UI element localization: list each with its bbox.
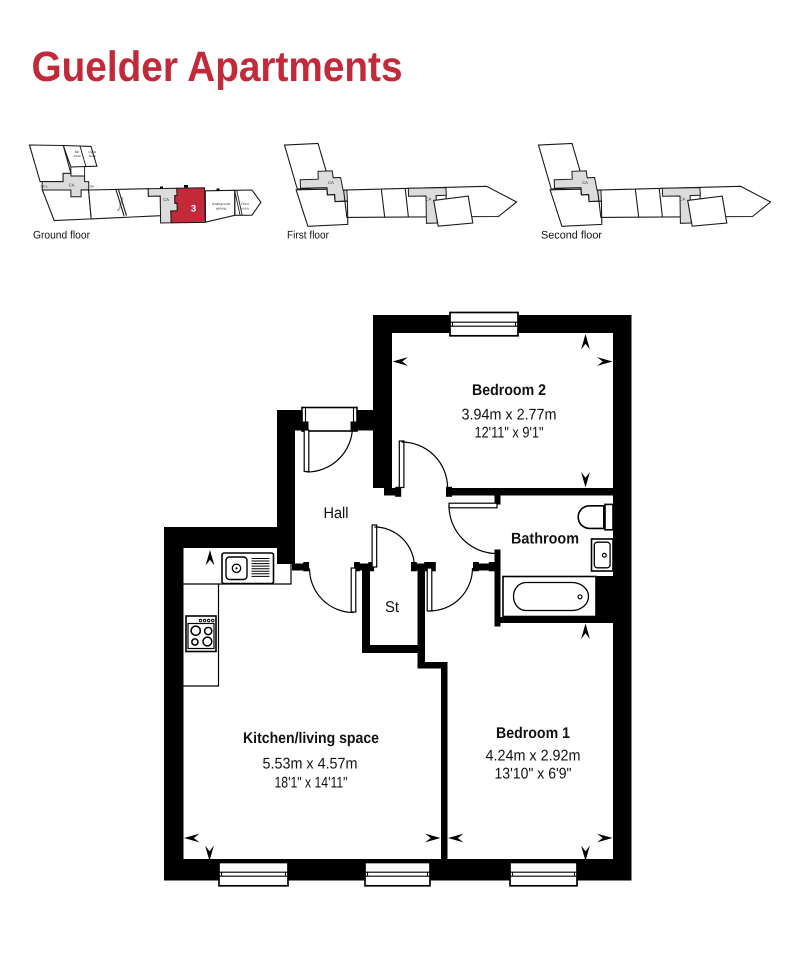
svg-text:Underground: Underground (212, 202, 231, 206)
svg-text:Second floor: Second floor (541, 230, 602, 242)
svg-text:St: St (385, 599, 400, 616)
svg-text:CA: CA (680, 197, 686, 202)
svg-text:Hall: Hall (324, 505, 349, 522)
svg-text:3: 3 (191, 204, 196, 215)
svg-text:Guelder Apartments: Guelder Apartments (32, 44, 403, 91)
svg-text:Plant: Plant (241, 202, 248, 206)
svg-text:CA: CA (163, 197, 169, 202)
svg-text:13'10" x 6'9": 13'10" x 6'9" (495, 766, 572, 783)
svg-text:3.94m x 2.77m: 3.94m x 2.77m (462, 407, 557, 424)
svg-text:WCs: WCs (41, 184, 48, 188)
svg-text:18'1" x 14'11": 18'1" x 14'11" (275, 775, 348, 792)
svg-text:CA: CA (69, 183, 75, 188)
svg-text:First floor: First floor (287, 230, 329, 242)
svg-text:Bedroom 2: Bedroom 2 (472, 382, 546, 399)
svg-text:CA: CA (328, 180, 334, 185)
svg-text:store: store (89, 154, 96, 158)
svg-text:CA: CA (582, 180, 588, 185)
svg-text:5.53m x 4.57m: 5.53m x 4.57m (263, 756, 358, 773)
svg-text:Ground floor: Ground floor (33, 230, 90, 242)
svg-text:4.24m x 2.92m: 4.24m x 2.92m (486, 748, 581, 765)
svg-text:Kitchen/living space: Kitchen/living space (243, 730, 379, 747)
svg-text:room: room (241, 207, 249, 211)
svg-text:Bathroom: Bathroom (511, 531, 579, 548)
svg-text:12'11" x 9'1": 12'11" x 9'1" (475, 425, 544, 442)
svg-text:Bedroom 1: Bedroom 1 (496, 725, 570, 742)
svg-text:CA: CA (426, 197, 432, 202)
svg-text:parking: parking (216, 207, 227, 211)
svg-text:store: store (73, 154, 80, 158)
